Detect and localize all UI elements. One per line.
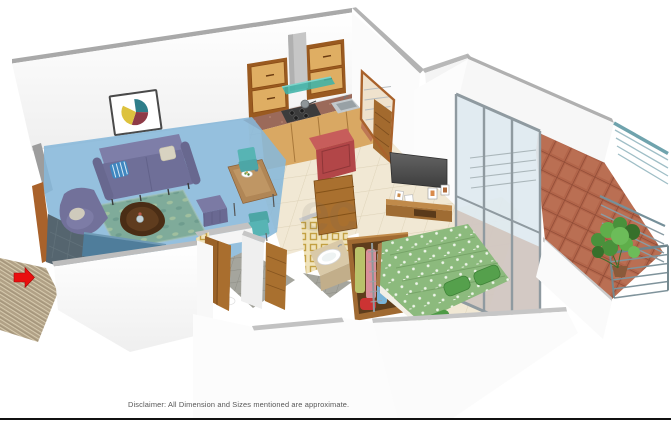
beige-pillow (159, 145, 176, 161)
bedroom-door-leaf (314, 175, 357, 235)
sliding-glass-door (456, 94, 540, 336)
bathroom2-door (265, 242, 287, 310)
table-vase (137, 216, 144, 223)
floorplan-scene (0, 0, 671, 422)
bottom-border-line (0, 418, 671, 420)
floorplan-render: ec Disclaimer: All Dimension and Sizes m… (0, 0, 671, 422)
entrance-area (0, 258, 58, 342)
entrance-floor (0, 258, 58, 342)
front-wall-bedroom-face (373, 312, 578, 421)
bathroom-divider-wall (241, 231, 266, 310)
clothes (355, 247, 365, 293)
cooking-pan (301, 100, 309, 108)
dining-chair-top (239, 149, 257, 171)
wall-art-frame (110, 90, 162, 135)
kitchen-wall-cabinet-right (305, 39, 346, 100)
disclaimer-text: Disclaimer: All Dimension and Sizes ment… (128, 400, 349, 409)
